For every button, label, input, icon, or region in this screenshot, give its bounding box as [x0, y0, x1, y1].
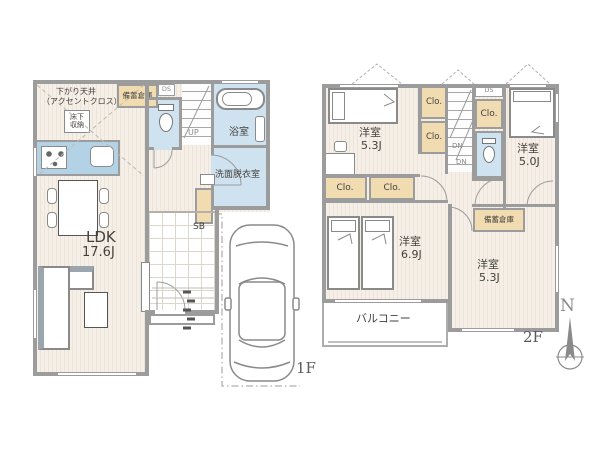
window: [33, 148, 37, 176]
sink-icon: [90, 146, 114, 167]
window: [510, 84, 546, 88]
stairs-dn-label: DN: [456, 159, 467, 167]
wall: [179, 97, 182, 150]
closet-label: Clo.: [384, 183, 401, 193]
washroom-label: 洗面脱衣室: [215, 170, 260, 180]
floor-plan-canvas: 備蓄倉庫 DS 床下収納 Clo. Clo. DS Cl: [0, 0, 600, 450]
f1-ldk-sliding-door: [141, 262, 150, 312]
f1-ds-label: DS: [162, 86, 171, 93]
compass-north-label: N: [560, 297, 575, 316]
f1-stockpile-storage: 備蓄倉庫: [117, 84, 158, 108]
stairs-dn-label: DN: [452, 143, 463, 151]
wall: [215, 206, 219, 314]
chair-icon: [99, 188, 109, 204]
wall: [322, 84, 326, 303]
bath-label: 浴室: [229, 127, 249, 138]
wall: [185, 310, 219, 314]
ldk-room-size: 17.6J: [82, 246, 115, 261]
wall: [322, 174, 420, 177]
pillow-icon: [331, 220, 356, 232]
chair-icon: [47, 212, 57, 228]
room-tr-name: 洋室: [517, 143, 539, 155]
closet-label: Clo.: [426, 98, 442, 108]
sofa-side: [38, 266, 70, 350]
window: [340, 84, 398, 88]
wall: [530, 204, 559, 207]
f2-stockpile-storage: 備蓄倉庫: [473, 208, 525, 232]
floor2-label: 2F: [523, 329, 543, 346]
wall: [448, 204, 452, 332]
toilet-icon: [158, 104, 174, 111]
desk: [323, 153, 355, 175]
f1-meter-box: [200, 174, 215, 185]
window: [555, 246, 559, 292]
wall: [418, 84, 421, 154]
window: [58, 372, 136, 376]
wall: [211, 145, 270, 148]
stairs-up-label: UP: [188, 129, 199, 138]
pillow-icon: [332, 92, 345, 120]
room-tl-name: 洋室: [359, 127, 381, 139]
room-tl-size: 5.3J: [361, 140, 382, 152]
wall: [145, 310, 149, 376]
chair-icon: [334, 141, 347, 152]
shoe-box-label: SB: [193, 222, 205, 232]
chair-icon: [47, 188, 57, 204]
wall: [472, 84, 475, 180]
wall: [145, 80, 149, 262]
balcony-rail: [328, 341, 442, 343]
wall: [172, 147, 182, 150]
ldk-room-name: LDK: [86, 229, 116, 246]
f2-closet: Clo.: [369, 176, 415, 200]
entrance-step-edge: [149, 211, 215, 213]
f1-porch-step: [149, 314, 215, 325]
f2-closet: Clo.: [420, 121, 448, 154]
closet-label: Clo.: [337, 183, 354, 193]
f2-closet: Clo.: [323, 176, 367, 200]
parking-boundary: [215, 214, 300, 386]
room-tr-size: 5.0J: [519, 156, 540, 168]
window: [555, 94, 559, 122]
f2-closet: Clo.: [420, 86, 448, 119]
bathtub-inner: [222, 92, 252, 106]
wall: [503, 207, 506, 210]
wall: [472, 178, 503, 181]
lowered-ceiling-note-line2: （アクセントクロス）: [42, 98, 122, 107]
room-bl-size: 6.9J: [401, 249, 422, 261]
floor1-label: 1F: [296, 360, 316, 377]
toilet-icon: [482, 138, 496, 144]
wall: [211, 185, 214, 209]
room-br-size: 5.3J: [479, 272, 500, 284]
roof-vent-marks: [352, 64, 550, 84]
window: [335, 299, 421, 303]
stove-icon: [41, 146, 67, 169]
f2-closet: Clo.: [475, 99, 503, 129]
lowered-ceiling-note-line1: 下がり天井: [56, 88, 96, 97]
room-br-name: 洋室: [477, 259, 499, 271]
closet-label: Clo.: [426, 133, 442, 143]
wall: [322, 200, 448, 203]
f1-duct-space: DS: [158, 84, 175, 96]
chair-icon: [99, 212, 109, 228]
f2-stockpile-label: 備蓄倉庫: [484, 216, 514, 224]
wall: [445, 84, 448, 174]
wall: [149, 147, 154, 150]
window: [222, 80, 258, 84]
wall: [211, 206, 270, 210]
wall: [503, 84, 506, 207]
window: [462, 328, 514, 332]
compass-icon: [556, 317, 584, 369]
bath-counter: [255, 116, 265, 142]
car-icon: [225, 225, 299, 381]
pillow-icon: [365, 220, 390, 232]
window: [33, 290, 37, 338]
pillow-icon: [513, 91, 551, 102]
f1-entrance-tiles: [149, 212, 215, 310]
wall: [149, 310, 155, 314]
side-table: [84, 292, 108, 328]
balcony-label: バルコニー: [356, 313, 411, 325]
room-bl-name: 洋室: [399, 236, 421, 248]
f1-underfloor-storage: 床下収納: [64, 110, 90, 133]
closet-label: Clo.: [481, 109, 498, 119]
wall: [149, 97, 182, 100]
f1-underfloor-label: 床下収納: [70, 114, 85, 130]
